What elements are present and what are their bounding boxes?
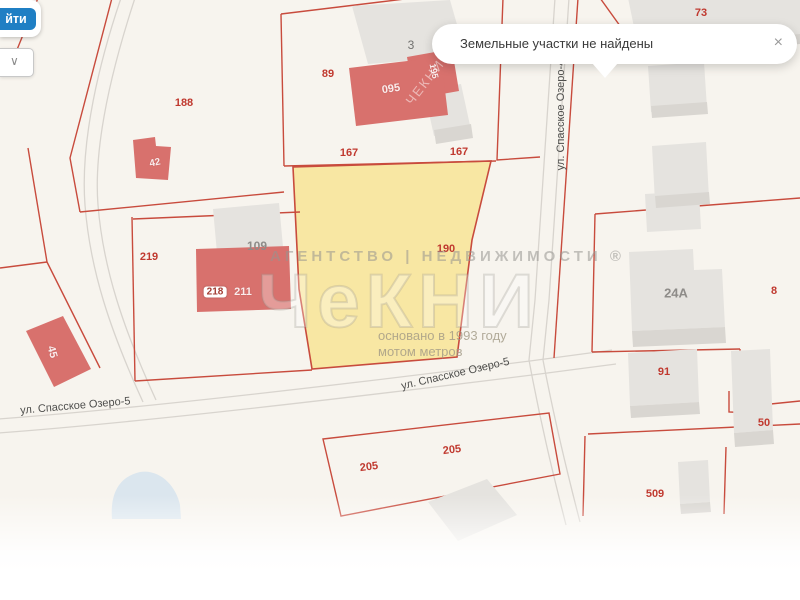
gray-building-shadows bbox=[434, 34, 800, 514]
toast-no-parcels: Земельные участки не найдены × bbox=[432, 24, 797, 64]
find-button[interactable]: йти bbox=[0, 8, 36, 30]
highlighted-parcel[interactable] bbox=[293, 161, 491, 369]
close-icon[interactable]: × bbox=[774, 33, 783, 53]
layer-dropdown[interactable]: ∨ bbox=[0, 48, 34, 77]
map-canvas[interactable] bbox=[0, 0, 800, 600]
chevron-down-icon: ∨ bbox=[10, 54, 19, 68]
pond bbox=[112, 472, 181, 519]
cadastral-map-app: 188 89 3 095 195 167 167 42 219 109 218 … bbox=[0, 0, 800, 600]
toast-message: Земельные участки не найдены bbox=[460, 24, 653, 64]
toast-pointer bbox=[592, 63, 618, 78]
